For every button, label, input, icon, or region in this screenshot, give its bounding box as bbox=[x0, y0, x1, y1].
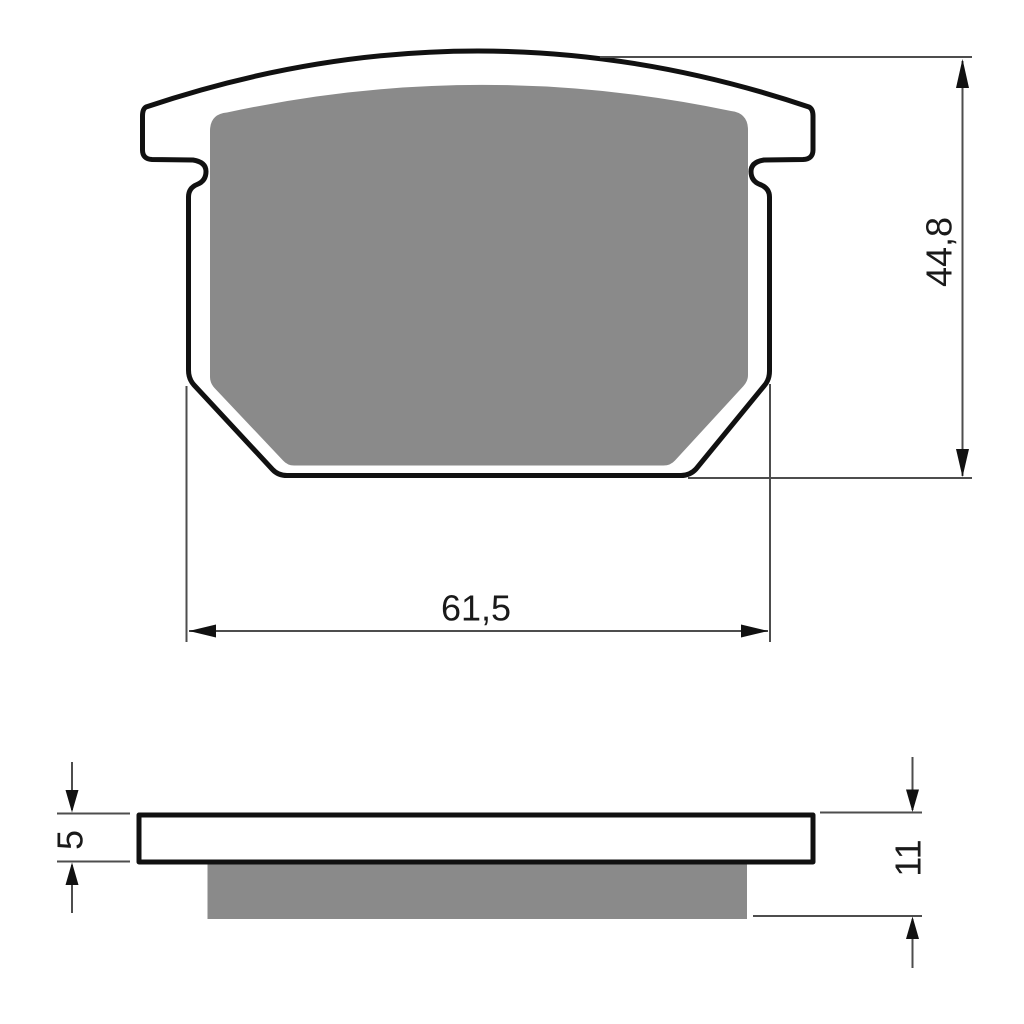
friction-material-front bbox=[210, 85, 748, 466]
arrowhead-right-icon bbox=[741, 625, 768, 638]
arrowhead-down-icon bbox=[956, 449, 969, 477]
arrowhead-left-icon bbox=[189, 625, 216, 638]
friction-material-side bbox=[208, 860, 748, 919]
dimension-label-height: 44,8 bbox=[919, 217, 960, 287]
backplate-side bbox=[139, 815, 813, 862]
arrowhead-down-icon bbox=[66, 790, 79, 813]
arrowhead-down-icon bbox=[906, 790, 919, 813]
front-view: 44,8 61,5 bbox=[143, 51, 973, 642]
dimension-plate-thickness: 5 bbox=[50, 762, 131, 913]
dimension-label-plate-thickness: 5 bbox=[50, 830, 91, 850]
arrowhead-up-icon bbox=[906, 917, 919, 940]
dimension-label-total-thickness: 11 bbox=[888, 839, 929, 876]
arrowhead-up-icon bbox=[66, 863, 79, 886]
arrowhead-up-icon bbox=[956, 59, 969, 88]
technical-drawing-page: 44,8 61,5 bbox=[0, 0, 1024, 1024]
side-view: 5 11 bbox=[50, 757, 929, 968]
dimension-label-width: 61,5 bbox=[441, 588, 511, 629]
brake-pad-technical-drawing: 44,8 61,5 bbox=[0, 0, 1024, 1024]
